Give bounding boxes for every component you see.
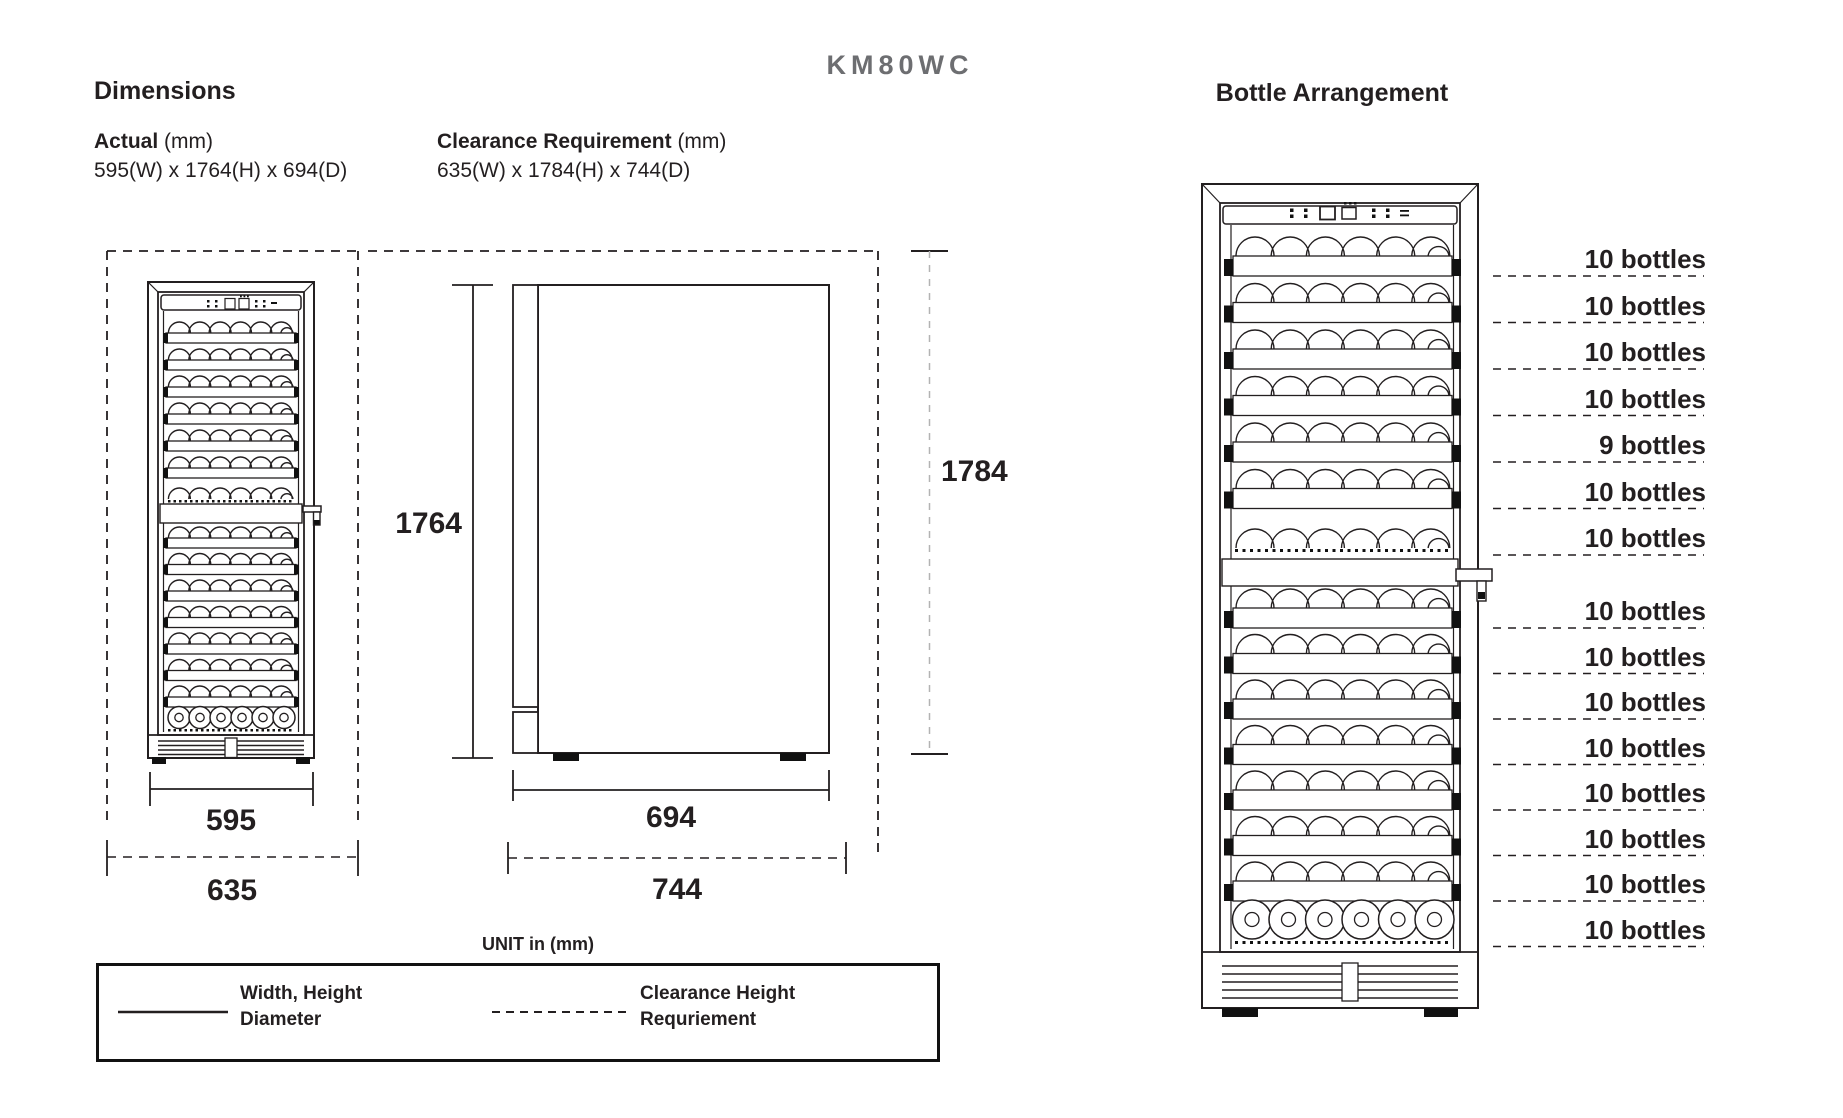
- legend-solid-label: Width, Height Diameter: [240, 981, 362, 1033]
- bottle-count-label: 10 bottles: [1466, 385, 1706, 413]
- actual-dimensions-label: Actual (mm): [94, 130, 213, 154]
- legend-solid-line1: Width, Height: [240, 981, 362, 1007]
- actual-unit: (mm): [164, 130, 213, 153]
- dimension-side-clearance-height: [911, 251, 948, 754]
- front-view-drawing-control-panel: [161, 295, 301, 310]
- actual-dimensions-value: 595(W) x 1764(H) x 694(D): [94, 159, 347, 183]
- page-title: KM80WC: [700, 50, 1100, 81]
- clearance-unit: (mm): [677, 130, 726, 153]
- bottle-count-label: 10 bottles: [1466, 245, 1706, 273]
- bottle-count-label: 10 bottles: [1466, 779, 1706, 807]
- bottle-count-label: 10 bottles: [1466, 597, 1706, 625]
- front-width-dim: 595: [131, 804, 331, 838]
- dimension-side-depth: [513, 770, 829, 801]
- legend-dashed-label: Clearance Height Requriement: [640, 981, 795, 1033]
- dimension-front-clearance-width: [107, 840, 358, 876]
- unit-note: UNIT in (mm): [388, 934, 688, 955]
- bottle-count-label: 10 bottles: [1466, 292, 1706, 320]
- legend-box: [96, 963, 940, 1062]
- dimension-front-width: [150, 772, 313, 806]
- bottle-count-label: 9 bottles: [1466, 431, 1706, 459]
- bottle-count-label: 10 bottles: [1466, 643, 1706, 671]
- bottle-count-label: 10 bottles: [1466, 825, 1706, 853]
- side-clearance-height-dim: 1784: [941, 455, 1141, 489]
- side-view-drawing: [513, 285, 829, 761]
- front-clearance-width-dim: 635: [132, 874, 332, 908]
- bottle-arrangement-heading: Bottle Arrangement: [1132, 79, 1532, 108]
- bottle-count-label: 10 bottles: [1466, 870, 1706, 898]
- legend-dashed-line1: Clearance Height: [640, 981, 795, 1007]
- actual-label: Actual: [94, 130, 158, 153]
- dimensions-heading: Dimensions: [94, 77, 236, 106]
- legend-dashed-line2: Requriement: [640, 1007, 795, 1033]
- side-clearance-depth-dim: 744: [577, 873, 777, 907]
- legend-solid-line2: Diameter: [240, 1007, 362, 1033]
- bottle-count-label: 10 bottles: [1466, 478, 1706, 506]
- side-depth-dim: 694: [571, 801, 771, 835]
- bottle-count-label: 10 bottles: [1466, 524, 1706, 552]
- dimension-side-clearance-depth: [508, 842, 846, 874]
- side-height-dim: 1764: [262, 507, 462, 541]
- bottle-count-label: 10 bottles: [1466, 734, 1706, 762]
- bottle-count-label: 10 bottles: [1466, 338, 1706, 366]
- spec-sheet-page: KM80WC Dimensions Bottle Arrangement Act…: [0, 0, 1843, 1118]
- bottle-count-label: 10 bottles: [1466, 916, 1706, 944]
- clearance-dimensions-value: 635(W) x 1784(H) x 744(D): [437, 159, 690, 183]
- bottle-arrangement-drawing-control-panel: [1223, 202, 1457, 224]
- bottle-arrangement-drawing: [1202, 184, 1478, 1008]
- clearance-dimensions-label: Clearance Requirement (mm): [437, 130, 726, 154]
- clearance-label: Clearance Requirement: [437, 130, 672, 153]
- bottle-count-label: 10 bottles: [1466, 688, 1706, 716]
